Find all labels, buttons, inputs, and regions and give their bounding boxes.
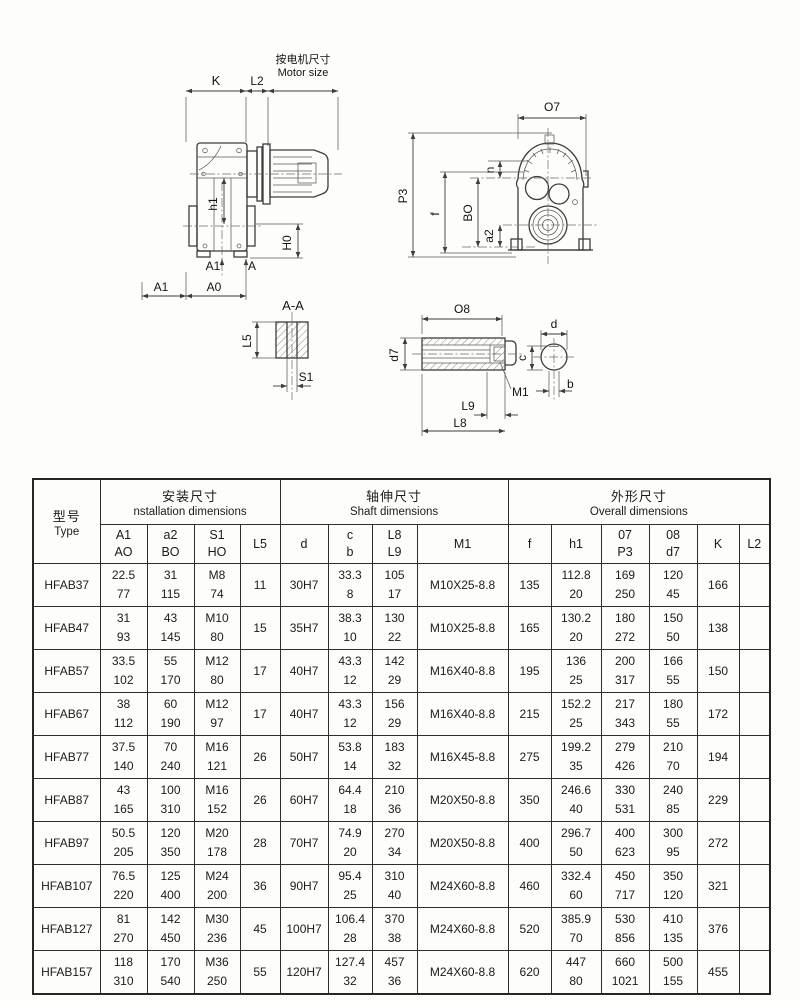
col-header-l2: L2 [739,525,770,564]
cell-type: HFAB37 [33,564,100,607]
cell-f: 165 [508,607,551,650]
cell-type: HFAB67 [33,693,100,736]
cell-c-b: 106.428 [328,908,372,951]
cell-c-b: 43.312 [328,693,372,736]
cell-c-b: 127.432 [328,951,372,995]
cell-l8-l9: 15629 [372,693,417,736]
cell-f: 620 [508,951,551,995]
cell-h1: 112.820 [551,564,601,607]
cell-m1: M10X25-8.8 [417,564,508,607]
cell-type: HFAB127 [33,908,100,951]
col-header-a1-ao: A1AO [100,525,147,564]
col-header-o8-d7: 08d7 [649,525,697,564]
dim-label-a0-outer: A0 [207,280,222,294]
cell-c-b: 53.814 [328,736,372,779]
cell-a2-bo: 55170 [147,650,194,693]
table-row: HFAB9750.5205120350M201782870H774.920270… [33,822,770,865]
cell-h1: 44780 [551,951,601,995]
cell-a1-ao: 38112 [100,693,147,736]
dim-label-l9: L9 [461,399,475,413]
group-header-row: 型号 Type 安装尺寸 nstallation dimensions 轴伸尺寸… [33,479,770,525]
section-title: A-A [282,298,304,313]
cell-l5: 36 [240,865,280,908]
group-header-overall: 外形尺寸 Overall dimensions [508,479,770,525]
datasheet-page: K L2 按电机尺寸 Motor size [0,0,800,1000]
cell-c-b: 33.38 [328,564,372,607]
cell-o8-d7: 21070 [649,736,697,779]
col-header-l5: L5 [240,525,280,564]
cell-h1: 13625 [551,650,601,693]
cell-o7-p3: 6601021 [601,951,649,995]
cell-o7-p3: 450717 [601,865,649,908]
side-view-drawing: K L2 按电机尺寸 Motor size [142,52,342,300]
cell-l5: 17 [240,650,280,693]
dim-label-o7: O7 [544,100,560,114]
cell-f: 460 [508,865,551,908]
cell-h1: 296.750 [551,822,601,865]
cell-a2-bo: 125400 [147,865,194,908]
cell-l5: 28 [240,822,280,865]
col-header-a2-bo: a2BO [147,525,194,564]
technical-drawings: K L2 按电机尺寸 Motor size [0,0,800,470]
cell-s1-ho: M874 [194,564,240,607]
cell-type: HFAB87 [33,779,100,822]
dim-label-c: c [515,355,529,361]
dim-label-k: K [212,73,221,88]
cell-k: 150 [697,650,739,693]
cell-s1-ho: M1080 [194,607,240,650]
dim-label-a1-outer: A1 [154,280,169,294]
col-header-m1: M1 [417,525,508,564]
cell-l5: 17 [240,693,280,736]
cell-d: 35H7 [280,607,328,650]
table-row: HFAB157118310170540M3625055120H7127.4324… [33,951,770,995]
group-shaft-en: Shaft dimensions [281,506,508,518]
cell-type: HFAB107 [33,865,100,908]
cell-l8-l9: 21036 [372,779,417,822]
cell-c-b: 64.418 [328,779,372,822]
cell-o8-d7: 350120 [649,865,697,908]
cell-a2-bo: 120350 [147,822,194,865]
cell-s1-ho: M30236 [194,908,240,951]
cell-f: 275 [508,736,551,779]
group-installation-en: nstallation dimensions [101,506,280,518]
cell-s1-ho: M16152 [194,779,240,822]
col-header-k: K [697,525,739,564]
table-row: HFAB12781270142450M3023645100H7106.42837… [33,908,770,951]
cell-l8-l9: 10517 [372,564,417,607]
cell-m1: M24X60-8.8 [417,908,508,951]
cell-a1-ao: 43165 [100,779,147,822]
table-body: HFAB3722.57731115M8741130H733.3810517M10… [33,564,770,995]
dim-label-b: b [567,377,574,391]
cell-type: HFAB97 [33,822,100,865]
cell-k: 138 [697,607,739,650]
cell-d: 30H7 [280,564,328,607]
shaft-view-drawing: O8 d7 M1 L9 L8 d [387,302,576,436]
spec-table: 型号 Type 安装尺寸 nstallation dimensions 轴伸尺寸… [32,478,771,995]
cell-f: 215 [508,693,551,736]
cell-a1-ao: 118310 [100,951,147,995]
cell-l2 [739,822,770,865]
dim-label-l8: L8 [453,416,467,430]
dim-label-bo: BO [461,204,475,221]
cell-a1-ao: 33.5102 [100,650,147,693]
dim-label-a-inner: A [248,259,256,273]
cell-l2 [739,564,770,607]
cell-l2 [739,736,770,779]
cell-l8-l9: 37038 [372,908,417,951]
col-header-l8-l9: L8L9 [372,525,417,564]
group-header-shaft: 轴伸尺寸 Shaft dimensions [280,479,508,525]
dim-label-h0: H0 [280,235,294,251]
cell-m1: M16X40-8.8 [417,693,508,736]
table-row: HFAB673811260190M12971740H743.31215629M1… [33,693,770,736]
cell-c-b: 95.425 [328,865,372,908]
cell-d: 120H7 [280,951,328,995]
cell-m1: M24X60-8.8 [417,951,508,995]
cell-l8-l9: 31040 [372,865,417,908]
type-header-cn: 型号 [34,506,100,525]
cell-k: 166 [697,564,739,607]
dim-label-n: n [483,167,497,174]
cell-o7-p3: 400623 [601,822,649,865]
cell-d: 40H7 [280,693,328,736]
group-overall-cn: 外形尺寸 [509,486,770,505]
cell-s1-ho: M16121 [194,736,240,779]
cell-s1-ho: M1297 [194,693,240,736]
cell-f: 350 [508,779,551,822]
cell-o8-d7: 16655 [649,650,697,693]
cell-l2 [739,908,770,951]
type-header-en: Type [34,526,100,538]
cell-a2-bo: 100310 [147,779,194,822]
dim-label-s1: S1 [299,370,314,384]
cell-type: HFAB47 [33,607,100,650]
cell-h1: 332.460 [551,865,601,908]
cell-c-b: 43.312 [328,650,372,693]
group-shaft-cn: 轴伸尺寸 [281,486,508,505]
col-header-o7-p3: 07P3 [601,525,649,564]
cell-o7-p3: 217343 [601,693,649,736]
cell-a2-bo: 43145 [147,607,194,650]
cell-o7-p3: 169250 [601,564,649,607]
cell-h1: 152.225 [551,693,601,736]
cell-h1: 246.640 [551,779,601,822]
cell-d: 90H7 [280,865,328,908]
cell-o7-p3: 330531 [601,779,649,822]
sub-header-row: A1AO a2BO S1HO L5 d cb L8L9 M1 f h1 07P3… [33,525,770,564]
cell-l8-l9: 13022 [372,607,417,650]
dim-label-o8: O8 [454,302,470,316]
motor-size-label-en: Motor size [278,67,329,79]
cell-m1: M20X50-8.8 [417,779,508,822]
cell-a1-ao: 37.5140 [100,736,147,779]
cell-o7-p3: 180272 [601,607,649,650]
cell-a2-bo: 70240 [147,736,194,779]
cell-o8-d7: 24085 [649,779,697,822]
cell-l2 [739,779,770,822]
group-installation-cn: 安装尺寸 [101,486,280,505]
dim-label-f: f [428,212,442,216]
cell-o8-d7: 500155 [649,951,697,995]
cell-f: 520 [508,908,551,951]
cell-o7-p3: 279426 [601,736,649,779]
cell-o7-p3: 200317 [601,650,649,693]
cell-f: 135 [508,564,551,607]
cell-o8-d7: 18055 [649,693,697,736]
cell-d: 40H7 [280,650,328,693]
cell-k: 172 [697,693,739,736]
cell-k: 272 [697,822,739,865]
cell-k: 321 [697,865,739,908]
cell-c-b: 74.920 [328,822,372,865]
cell-l2 [739,865,770,908]
cell-m1: M16X40-8.8 [417,650,508,693]
cell-h1: 130.220 [551,607,601,650]
col-header-type: 型号 Type [33,479,100,564]
table-row: HFAB3722.57731115M8741130H733.3810517M10… [33,564,770,607]
cell-k: 194 [697,736,739,779]
cell-s1-ho: M24200 [194,865,240,908]
cell-c-b: 38.310 [328,607,372,650]
dim-label-h1: h1 [206,197,220,211]
dim-label-l5: L5 [240,334,254,348]
group-overall-en: Overall dimensions [509,506,770,518]
cell-o8-d7: 30095 [649,822,697,865]
dim-label-a1-inner: A1 [206,259,221,273]
cell-l8-l9: 18332 [372,736,417,779]
table-row: HFAB47319343145M10801535H738.31013022M10… [33,607,770,650]
cell-l8-l9: 45736 [372,951,417,995]
cell-l2 [739,693,770,736]
table-row: HFAB5733.510255170M12801740H743.31214229… [33,650,770,693]
cell-l5: 26 [240,736,280,779]
cell-a1-ao: 50.5205 [100,822,147,865]
cell-m1: M20X50-8.8 [417,822,508,865]
cell-d: 100H7 [280,908,328,951]
cell-a1-ao: 3193 [100,607,147,650]
cell-m1: M10X25-8.8 [417,607,508,650]
col-header-s1-ho: S1HO [194,525,240,564]
cell-a2-bo: 170540 [147,951,194,995]
table-row: HFAB8743165100310M161522660H764.41821036… [33,779,770,822]
cell-f: 195 [508,650,551,693]
cell-type: HFAB77 [33,736,100,779]
front-view-drawing: O7 P3 f BO n a2 [396,100,597,264]
cell-f: 400 [508,822,551,865]
cell-type: HFAB157 [33,951,100,995]
housing-outline [517,143,584,250]
cell-a2-bo: 60190 [147,693,194,736]
cell-a2-bo: 142450 [147,908,194,951]
cell-o7-p3: 530856 [601,908,649,951]
cell-d: 50H7 [280,736,328,779]
cell-a1-ao: 76.5220 [100,865,147,908]
cell-k: 229 [697,779,739,822]
dim-label-m1: M1 [512,385,529,399]
cell-o8-d7: 12045 [649,564,697,607]
cell-m1: M24X60-8.8 [417,865,508,908]
dim-label-a2: a2 [482,229,496,243]
cell-l2 [739,650,770,693]
dim-label-l2: L2 [250,74,264,88]
cell-l5: 26 [240,779,280,822]
motor-size-label-cn: 按电机尺寸 [276,52,331,66]
section-view-drawing: A-A L5 S1 [240,298,314,400]
col-header-d: d [280,525,328,564]
cell-s1-ho: M20178 [194,822,240,865]
cell-l5: 55 [240,951,280,995]
dim-label-d: d [551,317,558,331]
cell-type: HFAB57 [33,650,100,693]
cell-l2 [739,607,770,650]
dim-label-p3: P3 [396,188,410,203]
cell-o8-d7: 410135 [649,908,697,951]
cell-l2 [739,951,770,995]
table-row: HFAB10776.5220125400M242003690H795.42531… [33,865,770,908]
cell-l5: 11 [240,564,280,607]
cell-l5: 45 [240,908,280,951]
cell-d: 70H7 [280,822,328,865]
cell-a1-ao: 81270 [100,908,147,951]
cell-l5: 15 [240,607,280,650]
cell-h1: 199.235 [551,736,601,779]
col-header-f: f [508,525,551,564]
group-header-installation: 安装尺寸 nstallation dimensions [100,479,280,525]
cell-h1: 385.970 [551,908,601,951]
cell-k: 455 [697,951,739,995]
cell-a2-bo: 31115 [147,564,194,607]
cell-a1-ao: 22.577 [100,564,147,607]
dim-label-d7: d7 [387,348,401,362]
cell-l8-l9: 27034 [372,822,417,865]
cell-m1: M16X45-8.8 [417,736,508,779]
cell-k: 376 [697,908,739,951]
cell-o8-d7: 15050 [649,607,697,650]
col-header-h1: h1 [551,525,601,564]
cell-s1-ho: M36250 [194,951,240,995]
cell-l8-l9: 14229 [372,650,417,693]
cell-s1-ho: M1280 [194,650,240,693]
table-row: HFAB7737.514070240M161212650H753.8141833… [33,736,770,779]
col-header-c-b: cb [328,525,372,564]
cell-d: 60H7 [280,779,328,822]
